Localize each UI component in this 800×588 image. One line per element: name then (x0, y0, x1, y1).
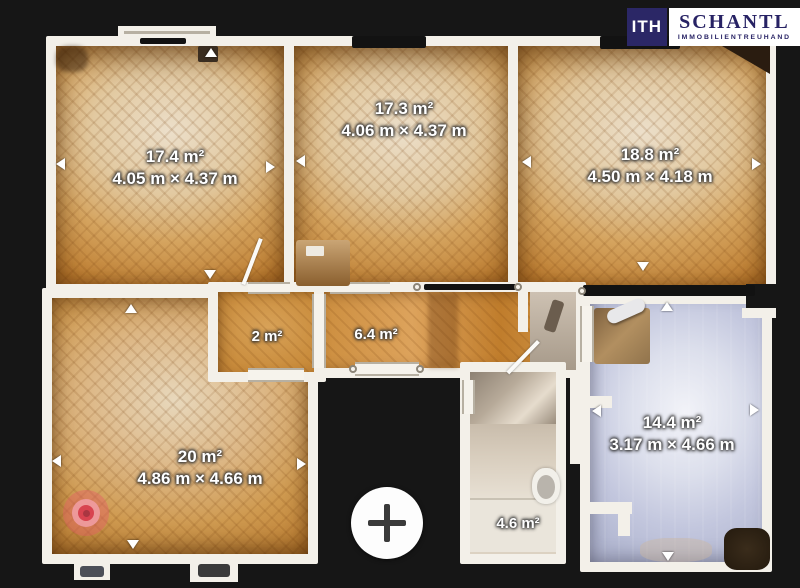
room-dimensions: 4.50 m × 4.18 m (587, 166, 712, 188)
camera-position-marker-ring (72, 499, 100, 527)
desk-papers (306, 246, 324, 256)
room-label-top-middle: 17.3 m² 4.06 m × 4.37 m (341, 98, 466, 142)
room-label-top-right: 18.8 m² 4.50 m × 4.18 m (587, 144, 712, 188)
measure-arrow-icon (637, 262, 649, 271)
room-area: 20 m² (137, 446, 262, 468)
wall-joint-dot (578, 287, 586, 295)
door-threshold (248, 282, 290, 294)
shaft-wall (570, 372, 582, 464)
measure-arrow-icon (127, 540, 139, 549)
measure-arrow-icon (522, 156, 531, 168)
door-threshold (355, 362, 419, 376)
measure-arrow-icon (56, 158, 65, 170)
zoom-in-button[interactable] (351, 487, 423, 559)
measure-arrow-icon (296, 155, 305, 167)
toilet-seat (537, 475, 555, 499)
room-dimensions: 3.17 m × 4.66 m (609, 434, 734, 456)
floor-highlight (640, 538, 712, 562)
logo-brand-subtitle: IMMOBILIENTREUHAND (678, 33, 791, 42)
measure-arrow-icon (752, 158, 761, 170)
wall-stub (518, 284, 528, 332)
corridor-shadow (428, 294, 458, 368)
plus-icon (384, 504, 390, 542)
logo-brand-name: SCHANTL (679, 12, 790, 33)
measure-arrow-icon (205, 48, 217, 57)
room-area: 18.8 m² (587, 144, 712, 166)
room-label-bottom-left: 20 m² 4.86 m × 4.66 m (137, 446, 262, 490)
room-area: 2 m² (252, 328, 283, 346)
camera-position-marker-core (78, 505, 94, 521)
room-label-bottom-right: 14.4 m² 3.17 m × 4.66 m (609, 412, 734, 456)
room-area: 17.4 m² (112, 146, 237, 168)
brand-logo: ITH SCHANTL IMMOBILIENTREUHAND (627, 8, 800, 46)
wall-stub (742, 308, 776, 318)
balcony-object (198, 564, 230, 577)
room-label-bathroom: 4.6 m² (496, 515, 539, 533)
room-label-corridor: 6.4 m² (354, 326, 397, 344)
measure-arrow-icon (297, 458, 306, 470)
measure-arrow-icon (661, 302, 673, 311)
wall-joint-dot (349, 365, 357, 373)
balcony-object (80, 566, 104, 577)
logo-brand-box: SCHANTL IMMOBILIENTREUHAND (669, 8, 800, 46)
measure-arrow-icon (125, 304, 137, 313)
floorplan-canvas[interactable]: 17.4 m² 4.05 m × 4.37 m 17.3 m² 4.06 m ×… (0, 0, 800, 588)
window-opening (352, 36, 426, 48)
door-threshold (580, 306, 594, 362)
closet-wall (618, 502, 630, 536)
measure-arrow-icon (204, 270, 216, 279)
door-threshold (312, 294, 326, 368)
dark-furniture (724, 528, 770, 570)
logo-monogram: ITH (627, 8, 667, 46)
room-area: 4.6 m² (496, 515, 539, 533)
room-area: 6.4 m² (354, 326, 397, 344)
wall-joint-dot (514, 283, 522, 291)
door-threshold (462, 380, 475, 414)
scan-gap (583, 285, 755, 296)
measure-arrow-icon (662, 552, 674, 561)
wall-joint-dot (416, 365, 424, 373)
measure-arrow-icon (750, 404, 759, 416)
window-opening (140, 38, 186, 44)
shower-area (470, 372, 556, 424)
room-dimensions: 4.06 m × 4.37 m (341, 120, 466, 142)
room-dimensions: 4.05 m × 4.37 m (112, 168, 237, 190)
camera-position-marker (63, 490, 109, 536)
measure-arrow-icon (52, 455, 61, 467)
corner-shadow (56, 46, 88, 72)
room-area: 17.3 m² (341, 98, 466, 120)
wall-joint-dot (413, 283, 421, 291)
camera-position-marker-center (83, 510, 90, 517)
room-label-top-left: 17.4 m² 4.05 m × 4.37 m (112, 146, 237, 190)
glass-partition (424, 284, 516, 290)
measure-arrow-icon (592, 405, 601, 417)
door-threshold (248, 368, 304, 382)
room-area: 14.4 m² (609, 412, 734, 434)
room-label-hallway: 2 m² (252, 328, 283, 346)
room-dimensions: 4.86 m × 4.66 m (137, 468, 262, 490)
window-line (124, 31, 210, 34)
measure-arrow-icon (266, 161, 275, 173)
